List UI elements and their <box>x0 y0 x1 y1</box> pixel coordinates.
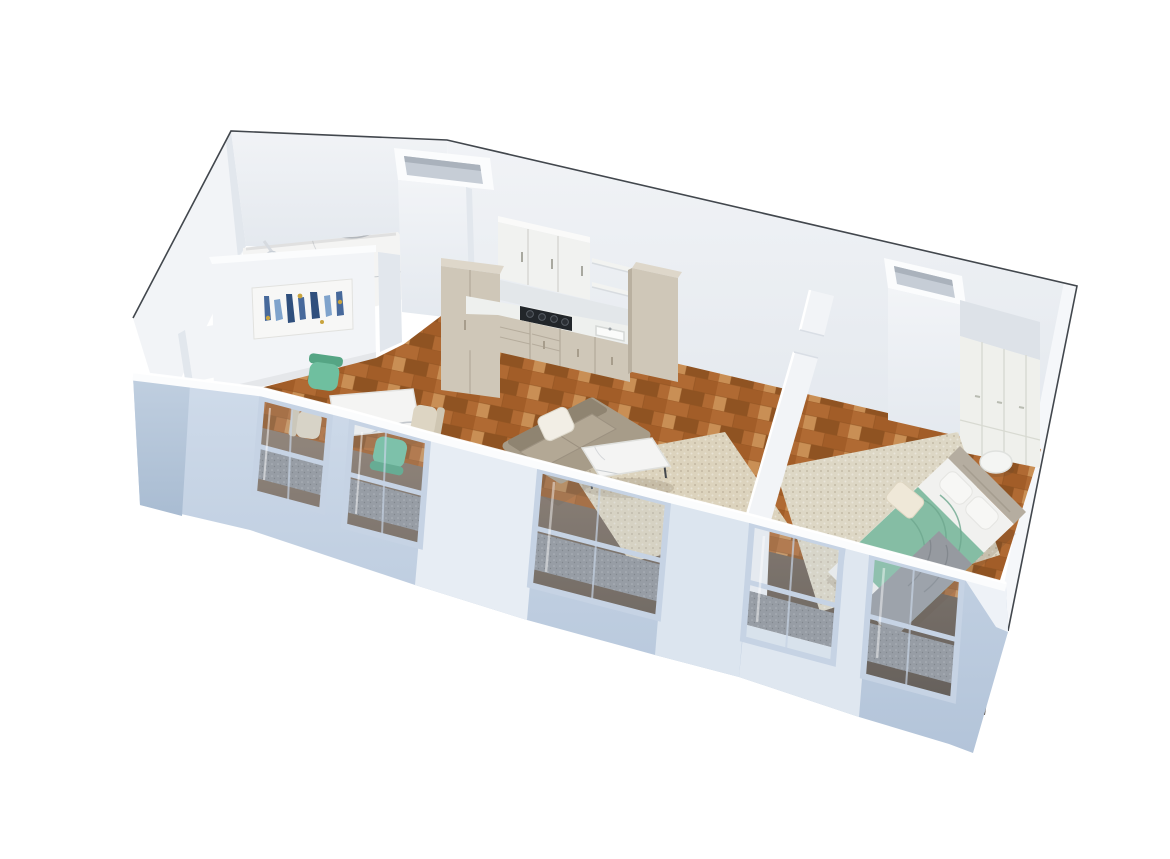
window-1 <box>254 398 330 511</box>
pier-center <box>655 498 752 677</box>
window-4 <box>743 524 842 663</box>
entry-doorway <box>378 252 402 352</box>
left-corner-chamfer <box>133 376 190 516</box>
kitchen-tall-cabinet-right <box>628 262 682 382</box>
floor-plan-render <box>0 0 1170 859</box>
window-2 <box>344 421 428 546</box>
nightstand <box>980 451 1012 473</box>
floor-plan-svg <box>0 0 1170 859</box>
service-shaft-bedroom <box>884 258 966 438</box>
artwork-abstract <box>252 279 353 339</box>
window-5 <box>863 556 962 700</box>
